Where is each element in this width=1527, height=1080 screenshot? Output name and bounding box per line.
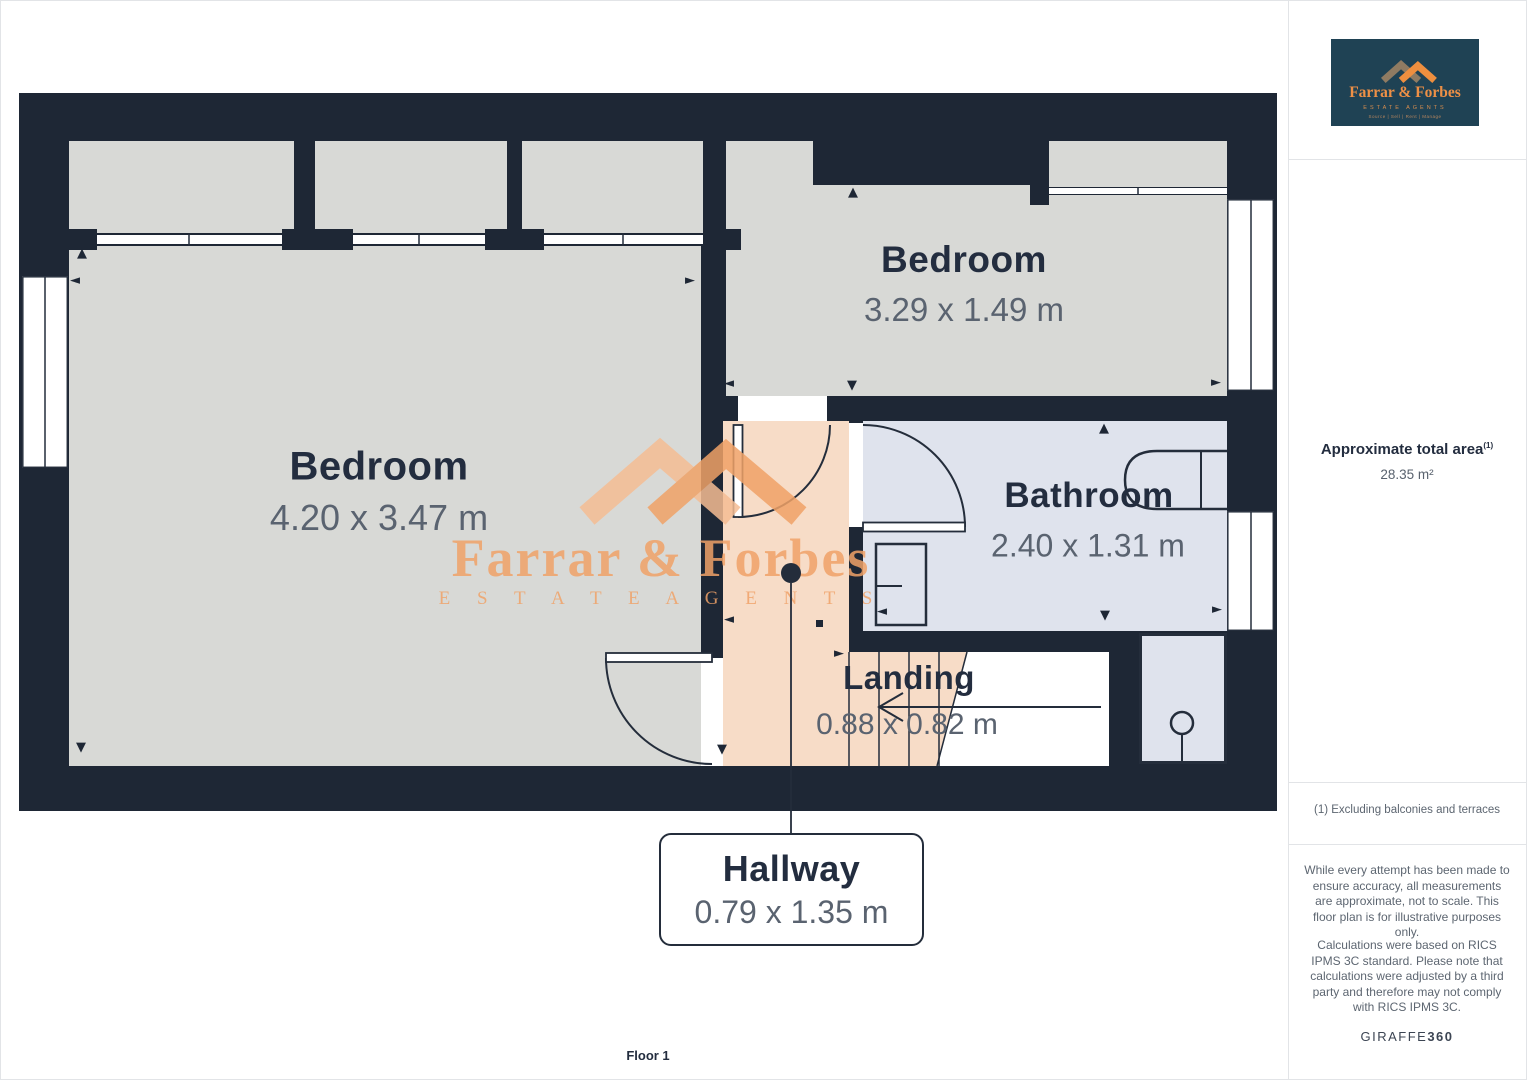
window-alcove bbox=[522, 141, 703, 233]
sidebar-divider bbox=[1289, 844, 1527, 845]
logo-subtagline-text: Source | Sell | Rent | Manage bbox=[1368, 114, 1441, 119]
dim-tick bbox=[714, 651, 721, 658]
logo-roof-icon bbox=[1331, 39, 1479, 84]
watermark-brand-text: Farrar & Forbes bbox=[452, 527, 871, 589]
dim-arrow-down-icon: ▼ bbox=[76, 741, 86, 754]
hallway-callout: Hallway 0.79 x 1.35 m bbox=[659, 833, 924, 946]
wall-step bbox=[1030, 141, 1049, 205]
logo-tagline-text: ESTATE AGENTS bbox=[1363, 105, 1446, 111]
area-footnote: (1) Excluding balconies and terraces bbox=[1314, 804, 1500, 816]
total-area-footnote-marker: (1) bbox=[1483, 441, 1493, 450]
window-alcove bbox=[69, 141, 294, 233]
dim-arrow-left-icon: ◄ bbox=[724, 377, 734, 390]
sidebar-divider bbox=[1289, 159, 1527, 160]
floor-label: Floor 1 bbox=[626, 1048, 669, 1063]
room-fill-bathroom bbox=[863, 421, 1227, 631]
dim-arrow-right-icon: ► bbox=[1212, 603, 1222, 616]
dim-arrow-up-icon: ▲ bbox=[77, 247, 87, 260]
window bbox=[97, 233, 282, 246]
dim-arrow-up-icon: ▲ bbox=[1099, 422, 1109, 435]
dim-arrow-left-icon: ◄ bbox=[70, 274, 80, 287]
window bbox=[22, 276, 68, 468]
room-label-bedroom-1: Bedroom bbox=[289, 445, 468, 490]
dim-arrow-up-icon: ▲ bbox=[848, 186, 858, 199]
dim-arrow-left-icon: ◄ bbox=[877, 605, 887, 618]
room-label-bathroom: Bathroom bbox=[1004, 476, 1173, 516]
window bbox=[1049, 187, 1227, 195]
room-dims-bedroom-1: 4.20 x 3.47 m bbox=[270, 497, 488, 539]
sidebar-divider bbox=[1289, 782, 1527, 783]
room-dims-bedroom-2: 3.29 x 1.49 m bbox=[864, 291, 1064, 329]
room-label-landing: Landing bbox=[843, 659, 975, 697]
total-area-title-text: Approximate total area bbox=[1321, 441, 1484, 458]
disclaimer-accuracy: While every attempt has been made to ens… bbox=[1303, 863, 1511, 941]
window bbox=[1227, 199, 1274, 391]
logo-brand-text: Farrar & Forbes bbox=[1349, 84, 1461, 103]
wall-pier bbox=[703, 229, 741, 250]
dim-arrow-right-icon: ► bbox=[1211, 376, 1221, 389]
agency-logo: Farrar & Forbes ESTATE AGENTS Source | S… bbox=[1331, 39, 1479, 126]
window-alcove bbox=[315, 141, 507, 233]
dim-arrow-down-icon: ▼ bbox=[847, 379, 857, 392]
window bbox=[1227, 511, 1274, 631]
wall-pier bbox=[282, 229, 353, 250]
disclaimer-calculations: Calculations were based on RICS IPMS 3C … bbox=[1303, 938, 1511, 1016]
giraffe360-brand: GIRAFFE360 bbox=[1360, 1029, 1453, 1044]
shower-tray bbox=[1139, 633, 1227, 764]
floor-plan-page: Farrar & Forbes E S T A T E A G E N T S … bbox=[0, 0, 1527, 1080]
dim-arrow-down-icon: ▼ bbox=[717, 743, 727, 756]
dim-arrow-right-icon: ► bbox=[685, 274, 695, 287]
dim-arrow-left-icon: ◄ bbox=[724, 613, 734, 626]
dim-arrow-right-icon: ► bbox=[834, 647, 844, 660]
window bbox=[544, 233, 703, 246]
room-label-hallway: Hallway bbox=[723, 848, 861, 890]
room-dims-hallway: 0.79 x 1.35 m bbox=[695, 894, 889, 931]
room-dims-bathroom: 2.40 x 1.31 m bbox=[991, 528, 1185, 565]
room-label-bedroom-2: Bedroom bbox=[881, 239, 1047, 281]
watermark-tagline-text: E S T A T E A G E N T S bbox=[439, 588, 884, 610]
sidebar-border bbox=[1288, 1, 1289, 1080]
total-area-value: 28.35 m² bbox=[1380, 467, 1433, 482]
window bbox=[353, 233, 485, 246]
wall-jog bbox=[813, 141, 1030, 185]
dim-tick bbox=[816, 620, 823, 627]
door-opening bbox=[738, 396, 827, 421]
giraffe360-brand-suffix: 360 bbox=[1427, 1029, 1453, 1044]
giraffe360-brand-text: GIRAFFE bbox=[1360, 1029, 1427, 1044]
room-dims-landing: 0.88 x 0.82 m bbox=[816, 708, 998, 742]
door-opening bbox=[849, 423, 863, 527]
wall-pier bbox=[485, 229, 544, 250]
total-area-title: Approximate total area(1) bbox=[1321, 441, 1493, 458]
dim-arrow-down-icon: ▼ bbox=[1100, 609, 1110, 622]
